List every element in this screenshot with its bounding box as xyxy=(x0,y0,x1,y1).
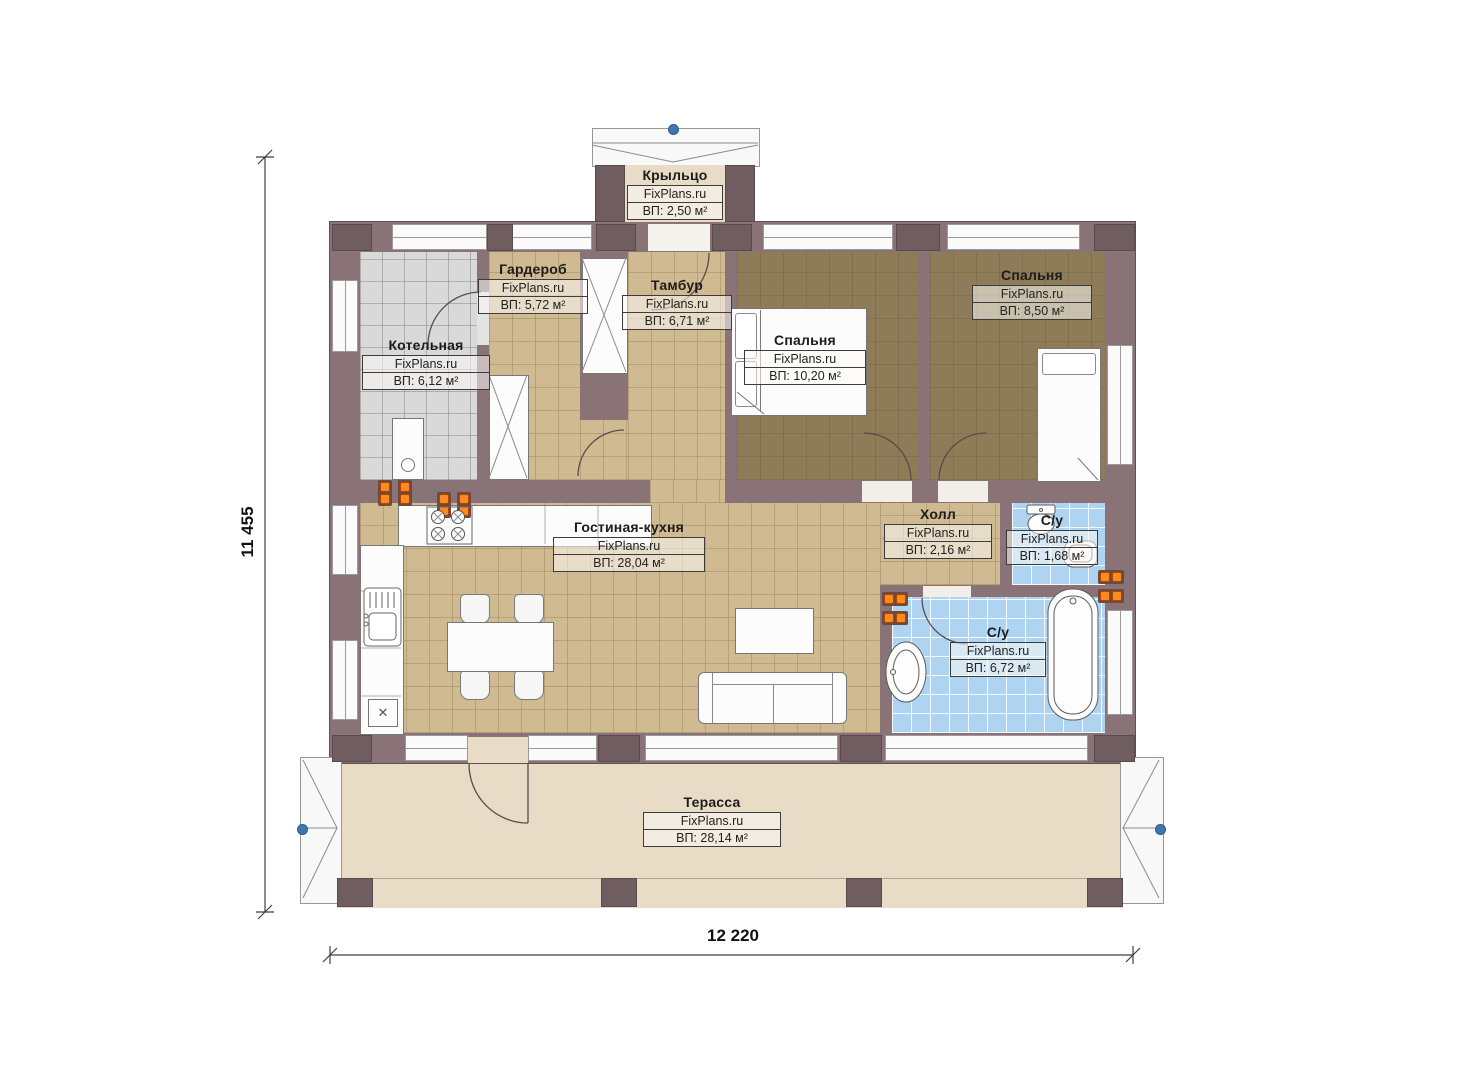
room-name: Тамбур xyxy=(622,277,732,293)
column-post xyxy=(487,224,513,251)
radiator xyxy=(1098,589,1124,603)
column-post xyxy=(598,735,640,762)
room-label-bedroom-2: Спальня FixPlans.ru ВП: 8,50 м² xyxy=(972,267,1092,320)
room-name: Спальня xyxy=(744,332,866,348)
room-area: ВП: 6,71 м² xyxy=(623,313,731,329)
room-area: ВП: 6,12 м² xyxy=(363,373,489,389)
window xyxy=(512,224,592,250)
room-name: С/у xyxy=(950,624,1046,640)
room-name: Котельная xyxy=(362,337,490,353)
chair xyxy=(460,594,490,624)
sofa xyxy=(698,672,847,724)
column-post xyxy=(332,735,372,762)
column-post xyxy=(1094,735,1135,762)
window xyxy=(1107,345,1133,465)
radiator xyxy=(378,480,392,506)
column-post xyxy=(896,224,940,251)
room-area: ВП: 6,72 м² xyxy=(951,660,1045,676)
room-area: ВП: 2,16 м² xyxy=(885,542,991,558)
brand-watermark: FixPlans.ru xyxy=(623,296,731,313)
room-label-bedroom-1: Спальня FixPlans.ru ВП: 10,20 м² xyxy=(744,332,866,385)
dimension-height-label: 11 455 xyxy=(238,477,258,587)
room-label-bathroom-main: С/у FixPlans.ru ВП: 6,72 м² xyxy=(950,624,1046,677)
radiator xyxy=(1098,570,1124,584)
brand-watermark: FixPlans.ru xyxy=(951,643,1045,660)
window xyxy=(332,505,358,575)
porch-column-right xyxy=(725,165,755,222)
room-label-terrace: Терасса FixPlans.ru ВП: 28,14 м² xyxy=(643,794,781,847)
porch-column-left xyxy=(595,165,625,222)
dining-table xyxy=(447,622,554,672)
room-name: Холл xyxy=(884,506,992,522)
boiler-dial xyxy=(401,458,415,472)
room-label-hall: Холл FixPlans.ru ВП: 2,16 м² xyxy=(884,506,992,559)
radiator xyxy=(882,611,908,625)
room-label-wardrobe: Гардероб FixPlans.ru ВП: 5,72 м² xyxy=(478,261,588,314)
floor-opening-vestibule xyxy=(650,480,728,503)
brand-watermark: FixPlans.ru xyxy=(363,356,489,373)
room-name: Спальня xyxy=(972,267,1092,283)
chair xyxy=(514,670,544,700)
brand-watermark: FixPlans.ru xyxy=(973,286,1091,303)
terrace-post xyxy=(337,878,373,907)
brand-watermark: FixPlans.ru xyxy=(554,538,704,555)
room-area: ВП: 8,50 м² xyxy=(973,303,1091,319)
room-name: Терасса xyxy=(643,794,781,810)
terrace-post xyxy=(846,878,882,907)
column-post xyxy=(840,735,882,762)
brand-watermark: FixPlans.ru xyxy=(745,351,865,368)
window xyxy=(947,224,1080,250)
terrace-door-opening xyxy=(468,737,528,763)
floor-plan-canvas: ✕ xyxy=(0,0,1474,1080)
window xyxy=(332,640,358,720)
window xyxy=(405,735,468,761)
room-area: ВП: 10,20 м² xyxy=(745,368,865,384)
dimension-marker xyxy=(1155,824,1166,835)
entrance-door-opening xyxy=(648,224,710,251)
room-name: Гостиная-кухня xyxy=(553,519,705,535)
column-post xyxy=(712,224,752,251)
terrace-edge-band xyxy=(337,878,1123,908)
dimension-marker xyxy=(668,124,679,135)
radiator xyxy=(457,492,471,518)
sofa-armrest xyxy=(832,673,846,723)
pillow xyxy=(1042,353,1096,375)
room-area: ВП: 28,14 м² xyxy=(644,830,780,846)
radiator xyxy=(398,480,412,506)
brand-watermark: FixPlans.ru xyxy=(644,813,780,830)
wall xyxy=(988,480,1105,503)
radiator xyxy=(882,592,908,606)
wall xyxy=(971,585,1105,597)
radiator xyxy=(437,492,451,518)
room-area: ВП: 5,72 м² xyxy=(479,297,587,313)
door-opening-bathroom-main xyxy=(923,586,971,597)
door-opening-bedroom-2 xyxy=(938,481,988,502)
chair xyxy=(460,670,490,700)
sofa-armrest xyxy=(699,673,713,723)
room-area: ВП: 1,68 м² xyxy=(1007,548,1097,564)
dimension-width-label: 12 220 xyxy=(688,926,778,946)
terrace-post xyxy=(601,878,637,907)
wall xyxy=(912,480,938,503)
sofa-cushion-divider xyxy=(773,684,774,723)
room-label-living-kitchen: Гостиная-кухня FixPlans.ru ВП: 28,04 м² xyxy=(553,519,705,572)
room-name: Гардероб xyxy=(478,261,588,277)
window xyxy=(1107,610,1133,715)
door-opening-bedroom-1 xyxy=(862,481,912,502)
window xyxy=(645,735,838,761)
brand-watermark: FixPlans.ru xyxy=(628,186,722,203)
room-label-porch: Крыльцо FixPlans.ru ВП: 2,50 м² xyxy=(627,167,723,220)
dimension-marker xyxy=(297,824,308,835)
window xyxy=(763,224,893,250)
window xyxy=(332,280,358,352)
brand-watermark: FixPlans.ru xyxy=(885,525,991,542)
room-name: Крыльцо xyxy=(627,167,723,183)
wardrobe-cabinet xyxy=(489,375,529,480)
brand-watermark: FixPlans.ru xyxy=(479,280,587,297)
room-label-boiler: Котельная FixPlans.ru ВП: 6,12 м² xyxy=(362,337,490,390)
wall xyxy=(728,480,862,503)
column-post xyxy=(332,224,372,251)
window xyxy=(528,735,597,761)
column-post xyxy=(596,224,636,251)
room-area: ВП: 28,04 м² xyxy=(554,555,704,571)
brand-watermark: FixPlans.ru xyxy=(1007,531,1097,548)
terrace-post xyxy=(1087,878,1123,907)
chair xyxy=(514,594,544,624)
wall xyxy=(918,252,930,480)
room-name: С/у xyxy=(1006,512,1098,528)
washing-machine: ✕ xyxy=(368,699,398,727)
window xyxy=(885,735,1088,761)
floor-opening-wardrobe xyxy=(580,420,628,480)
coffee-table xyxy=(735,608,814,654)
window xyxy=(392,224,487,250)
column-post xyxy=(1094,224,1135,251)
room-area: ВП: 2,50 м² xyxy=(628,203,722,219)
room-label-bathroom-small: С/у FixPlans.ru ВП: 1,68 м² xyxy=(1006,512,1098,565)
room-label-vestibule: Тамбур FixPlans.ru ВП: 6,71 м² xyxy=(622,277,732,330)
wall xyxy=(580,372,628,420)
